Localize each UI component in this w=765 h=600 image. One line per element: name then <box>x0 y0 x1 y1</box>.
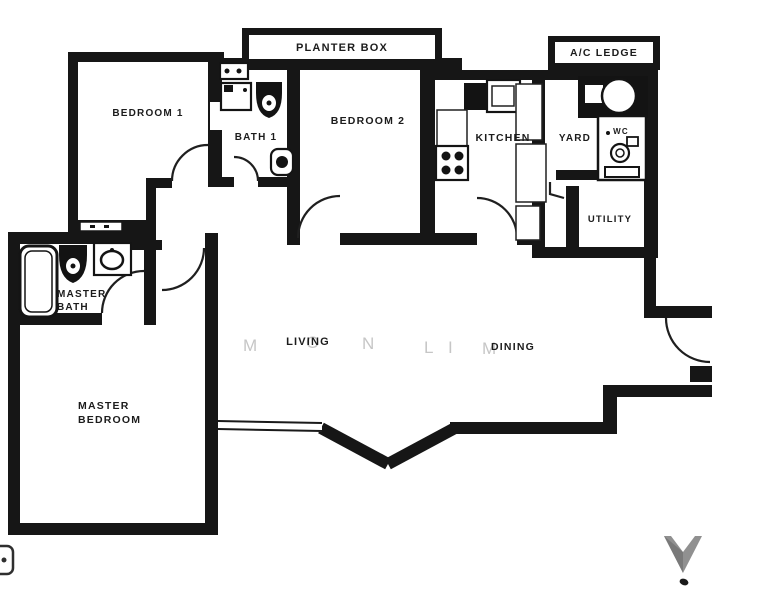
watermark-letter: N <box>362 334 374 353</box>
living-label: LIVING <box>286 336 330 348</box>
floor-plan-canvas: M O N L I M <box>0 0 765 600</box>
bath-window <box>80 222 122 231</box>
bath1-shower-icon <box>221 83 251 110</box>
master-bedroom-label-2: BEDROOM <box>78 414 141 426</box>
bath1-label: BATH 1 <box>235 132 278 143</box>
kitchen-sink-icon <box>487 80 520 112</box>
utility-label: UTILITY <box>588 214 632 225</box>
planter-box-label: PLANTER BOX <box>296 42 388 54</box>
kitchen-drainboard <box>464 83 487 110</box>
bath1-sink-icon <box>220 63 248 79</box>
master-bath-label-1: MASTER <box>57 289 106 300</box>
master-bath-label-2: BATH <box>57 302 89 313</box>
watermark-letter: I <box>448 338 453 357</box>
wash-basin-icon <box>602 79 636 113</box>
ac-ledge-label: A/C LEDGE <box>570 47 638 59</box>
watermark-letter: L <box>424 338 433 357</box>
master-bedroom-label-1: MASTER <box>78 400 130 412</box>
edge-stamp-mark <box>0 546 13 574</box>
kitchen-counter <box>516 206 540 240</box>
kitchen-counter <box>516 144 546 202</box>
bathtub-icon <box>20 246 57 317</box>
kitchen-label: KITCHEN <box>475 132 530 144</box>
wc-label: WC <box>613 127 629 136</box>
bedroom2-label: BEDROOM 2 <box>331 115 405 127</box>
stove-icon <box>436 146 468 180</box>
dining-label: DINING <box>491 341 535 353</box>
yard-label: YARD <box>559 133 591 144</box>
watermark-letter: M <box>243 336 257 355</box>
bath1-bidet-icon <box>271 149 293 175</box>
bedroom1-label: BEDROOM 1 <box>112 108 183 119</box>
kitchen-counter <box>437 110 467 146</box>
master-sink-icon <box>94 243 131 275</box>
